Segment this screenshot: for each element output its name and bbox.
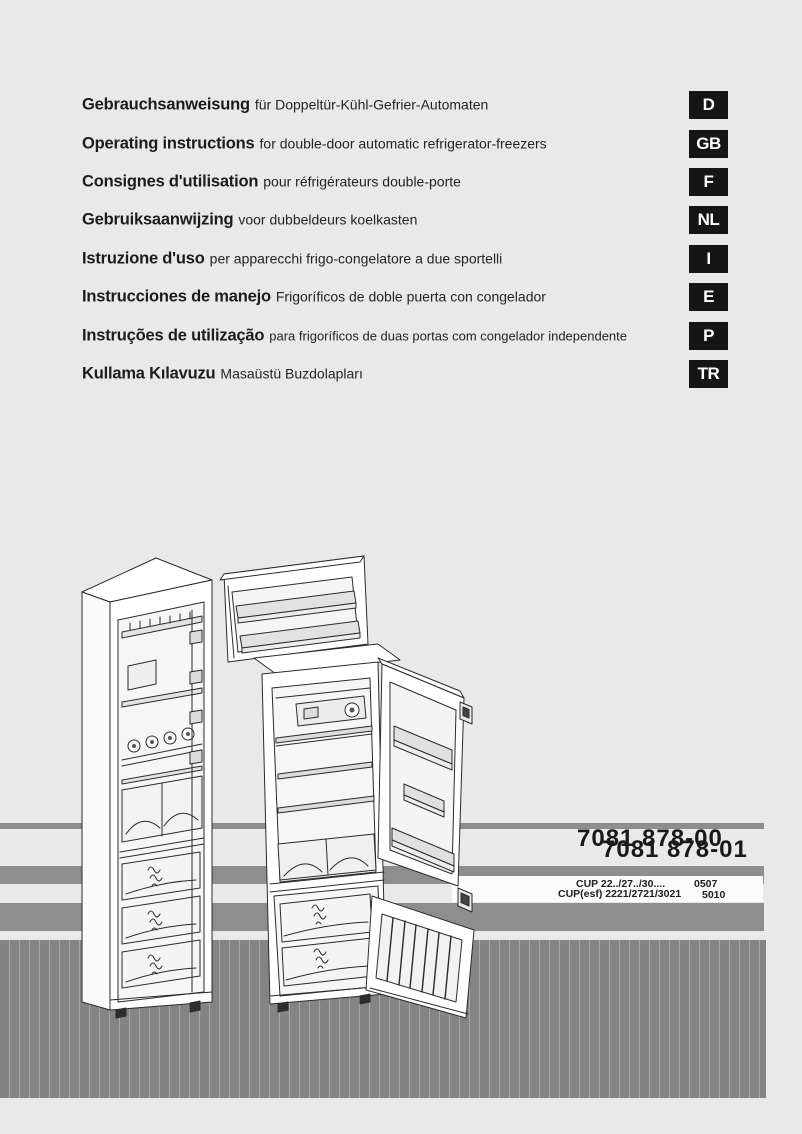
- language-row: Instrucciones de manejoFrigoríficos de d…: [82, 278, 728, 316]
- language-subtitle: pour réfrigérateurs double-porte: [263, 173, 461, 189]
- language-title: Gebruiksaanwijzing: [82, 211, 233, 229]
- language-subtitle: für Doppeltür-Kühl-Gefrier-Automaten: [255, 97, 488, 113]
- language-subtitle: Masaüstü Buzdolapları: [220, 365, 362, 381]
- rear-unit-open-door: [220, 556, 368, 662]
- language-subtitle: per apparecchi frigo-congelatore a due s…: [210, 250, 503, 266]
- model-code-line2-label: CUP(esf) 2221/2721/3021: [558, 889, 681, 899]
- language-badge: P: [689, 322, 728, 350]
- freezer-door-open: [366, 896, 474, 1018]
- language-badge: F: [689, 168, 728, 196]
- language-title: Operating instructions: [82, 134, 255, 152]
- language-row: Kullama KılavuzuMasaüstü Buzdolapları TR: [82, 355, 728, 393]
- language-badge: E: [689, 283, 728, 311]
- refrigerator-illustration: [60, 540, 490, 1020]
- language-row: Instruções de utilizaçãopara frigorífico…: [82, 316, 728, 354]
- language-title: Consignes d'utilisation: [82, 172, 258, 190]
- language-subtitle: voor dubbeldeurs koelkasten: [238, 212, 417, 228]
- language-badge: TR: [689, 360, 728, 388]
- language-row: Gebrauchsanweisungfür Doppeltür-Kühl-Gef…: [82, 86, 728, 124]
- language-row: Istruzione d'usoper apparecchi frigo-con…: [82, 240, 728, 278]
- language-badge: D: [689, 91, 728, 119]
- language-row: Consignes d'utilisationpour réfrigérateu…: [82, 163, 728, 201]
- language-badge: I: [689, 245, 728, 273]
- language-title: Istruzione d'uso: [82, 249, 205, 267]
- left-refrigerator: [82, 558, 212, 1018]
- language-index: Gebrauchsanweisungfür Doppeltür-Kühl-Gef…: [82, 86, 728, 393]
- language-badge: NL: [689, 206, 728, 234]
- fridge-door-open: [378, 658, 472, 912]
- language-title: Instrucciones de manejo: [82, 288, 271, 306]
- language-subtitle: Frigoríficos de doble puerta con congela…: [276, 289, 546, 305]
- model-code-line1-code: 0507: [694, 879, 717, 889]
- language-title: Kullama Kılavuzu: [82, 364, 215, 382]
- manual-cover-page: Gebrauchsanweisungfür Doppeltür-Kühl-Gef…: [0, 0, 802, 1134]
- language-subtitle: para frigoríficos de duas portas com con…: [269, 328, 627, 343]
- language-badge: GB: [689, 130, 728, 158]
- language-row: Operating instructionsfor double-door au…: [82, 124, 728, 162]
- language-title: Gebrauchsanweisung: [82, 96, 250, 114]
- part-number-secondary: 7081 878-01: [602, 836, 748, 864]
- language-title: Instruções de utilização: [82, 326, 264, 344]
- language-subtitle: for double-door automatic refrigerator-f…: [260, 135, 547, 151]
- language-row: Gebruiksaanwijzingvoor dubbeldeurs koelk…: [82, 201, 728, 239]
- model-code-line2-code: 5010: [702, 890, 725, 900]
